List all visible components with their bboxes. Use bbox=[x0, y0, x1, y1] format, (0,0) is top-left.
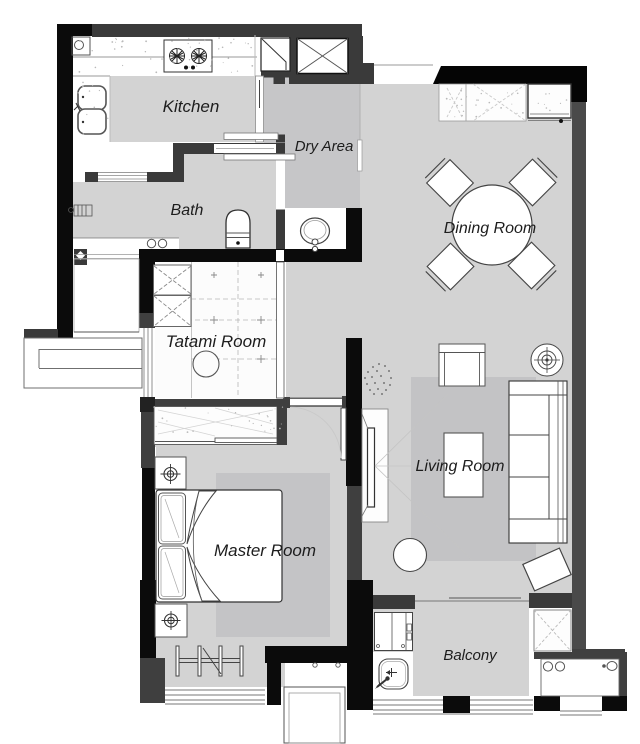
svg-text:Tatami Room: Tatami Room bbox=[166, 332, 266, 351]
svg-text:Dry Area: Dry Area bbox=[295, 138, 354, 155]
svg-text:Kitchen: Kitchen bbox=[163, 97, 220, 116]
svg-text:Bath: Bath bbox=[171, 202, 204, 219]
svg-text:Balcony: Balcony bbox=[443, 647, 498, 664]
svg-text:Master Room: Master Room bbox=[214, 541, 316, 560]
svg-text:Living Room: Living Room bbox=[416, 458, 505, 475]
svg-text:Dining Room: Dining Room bbox=[444, 220, 536, 237]
